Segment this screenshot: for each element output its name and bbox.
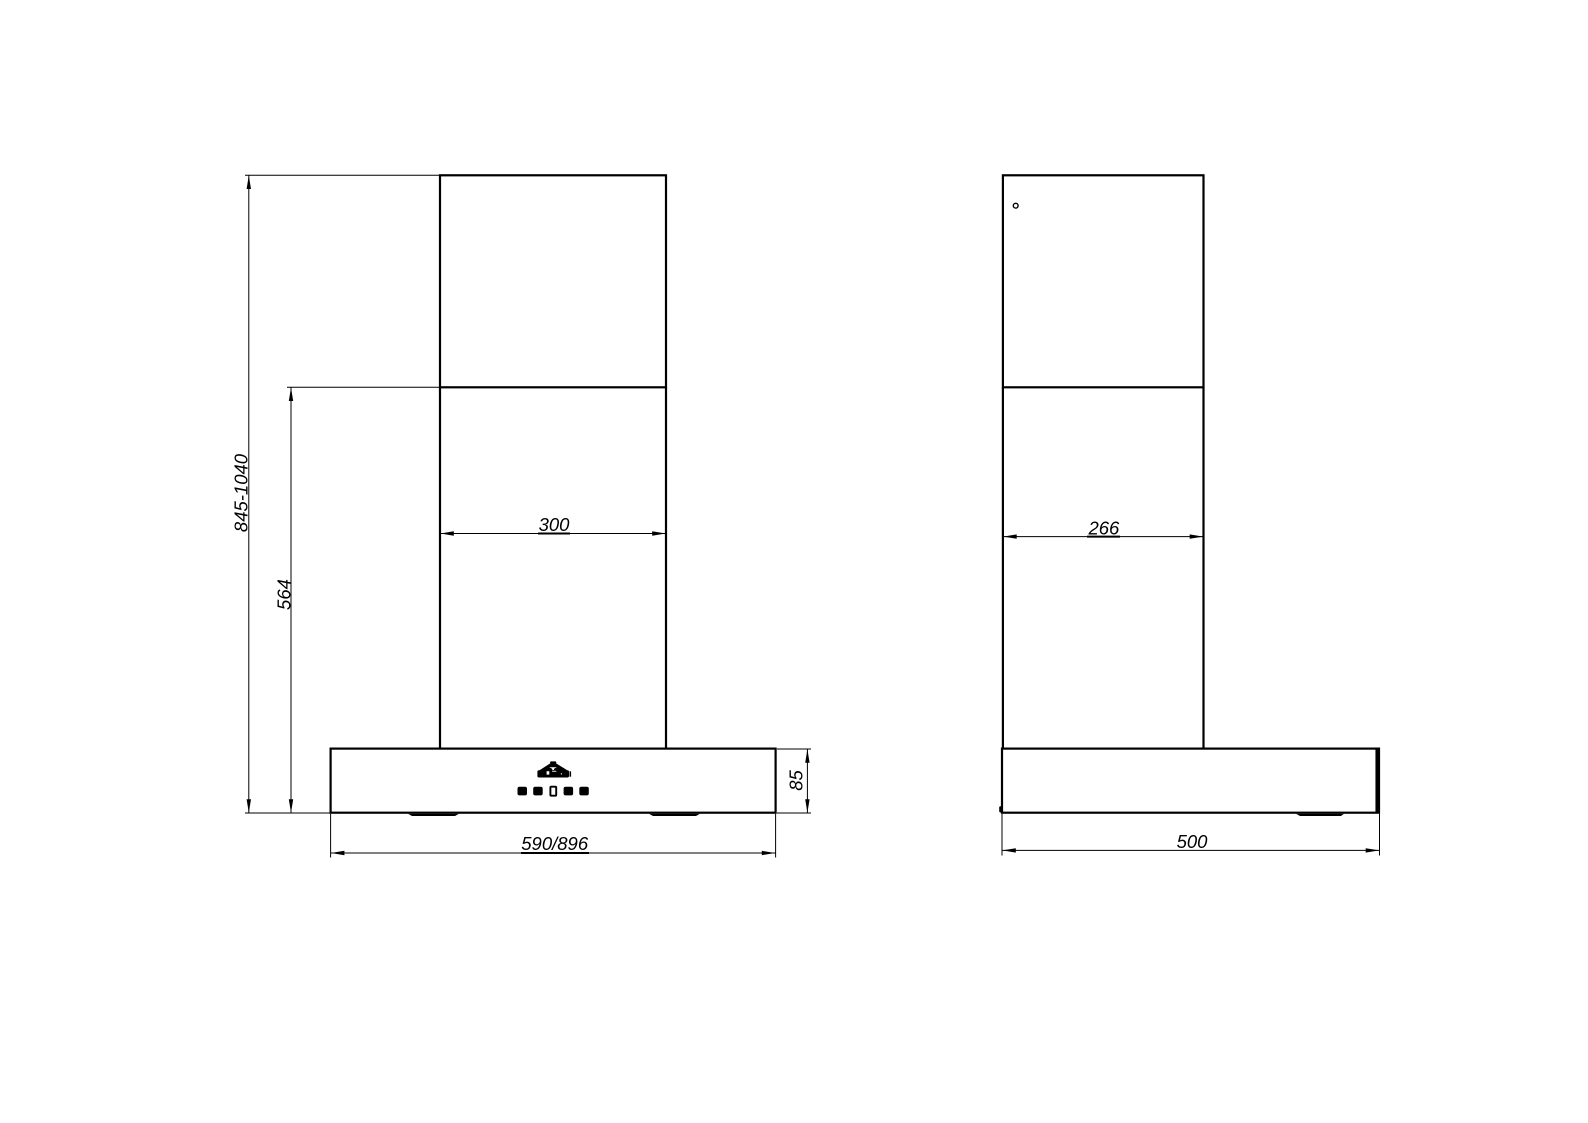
svg-text:266: 266 bbox=[1087, 517, 1120, 538]
svg-text:85: 85 bbox=[786, 770, 807, 791]
svg-text:590/896: 590/896 bbox=[521, 833, 589, 854]
svg-text:500: 500 bbox=[1177, 831, 1209, 852]
svg-text:845-1040: 845-1040 bbox=[230, 453, 251, 532]
svg-text:564: 564 bbox=[273, 579, 294, 610]
svg-text:300: 300 bbox=[539, 514, 571, 535]
